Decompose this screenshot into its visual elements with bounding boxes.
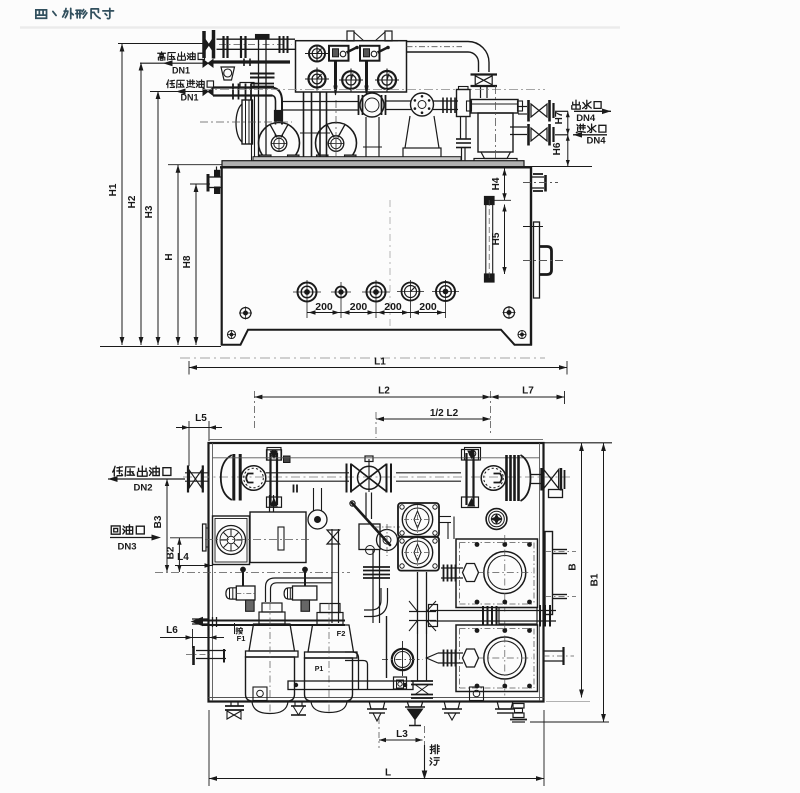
svg-text:L7: L7 bbox=[522, 386, 534, 397]
svg-text:200: 200 bbox=[350, 301, 368, 313]
svg-text:H3: H3 bbox=[144, 205, 155, 218]
svg-text:DN1: DN1 bbox=[172, 66, 190, 76]
svg-text:B3: B3 bbox=[153, 515, 164, 528]
svg-text:F2: F2 bbox=[337, 629, 346, 638]
svg-text:DN3: DN3 bbox=[117, 542, 136, 553]
svg-text:DN2: DN2 bbox=[133, 483, 152, 494]
svg-text:L5: L5 bbox=[195, 413, 207, 424]
svg-text:L2: L2 bbox=[378, 386, 390, 397]
svg-text:DN4: DN4 bbox=[576, 113, 596, 124]
svg-text:L4: L4 bbox=[177, 552, 189, 563]
svg-text:F1: F1 bbox=[237, 634, 246, 643]
svg-text:P1: P1 bbox=[315, 666, 324, 673]
svg-text:H8: H8 bbox=[182, 255, 193, 268]
svg-text:L3: L3 bbox=[396, 729, 408, 740]
svg-text:L6: L6 bbox=[166, 625, 178, 636]
svg-text:1/2 L2: 1/2 L2 bbox=[430, 408, 459, 419]
svg-text:H6: H6 bbox=[552, 142, 563, 155]
svg-text:L: L bbox=[385, 768, 391, 779]
svg-text:H7: H7 bbox=[554, 111, 565, 124]
svg-text:B: B bbox=[568, 563, 579, 570]
svg-text:H1: H1 bbox=[108, 183, 119, 196]
svg-text:200: 200 bbox=[315, 301, 333, 313]
svg-text:DN4: DN4 bbox=[586, 136, 606, 147]
svg-text:H4: H4 bbox=[491, 177, 502, 190]
svg-text:B1: B1 bbox=[590, 573, 601, 586]
svg-text:200: 200 bbox=[419, 301, 437, 313]
svg-text:B2: B2 bbox=[166, 546, 177, 559]
svg-text:H5: H5 bbox=[491, 232, 502, 245]
svg-text:H2: H2 bbox=[127, 195, 138, 208]
svg-text:L1: L1 bbox=[374, 357, 386, 368]
svg-text:H: H bbox=[164, 253, 175, 260]
svg-text:DN1: DN1 bbox=[180, 93, 198, 103]
svg-text:200: 200 bbox=[384, 301, 402, 313]
